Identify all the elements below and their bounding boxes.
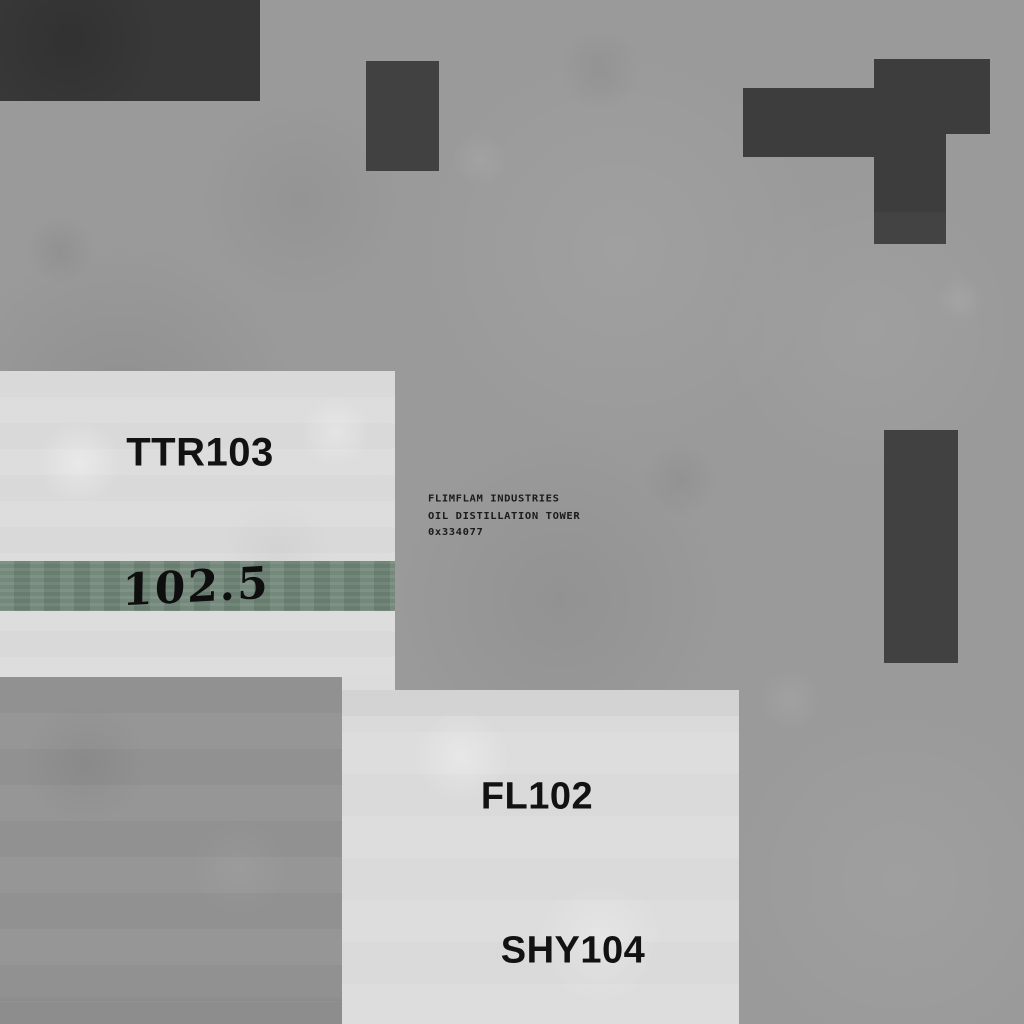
tank-label-ttr103: TTR103 [126,431,274,476]
facility-sign-line-code: 0x334077 [428,525,580,542]
facility-sign-line-unit: OIL DISTILLATION TOWER [428,508,580,525]
lower-left-slab [0,677,342,1024]
facility-ground-scene: TTR103 102.5 FL102 SHY104 FLIMFLAM INDUS… [0,0,1024,1024]
dark-structure-small-column [366,61,439,171]
tank-label-fl102: FL102 [481,776,593,819]
dark-structure-top-left [0,0,260,101]
facility-sign-line-company: FLIMFLAM INDUSTRIES [428,491,580,508]
tank-panel-fl102-shy104 [342,690,739,1024]
dark-structure-tee-stem [874,134,946,244]
tank-panel-connector [342,677,395,690]
tank-label-shy104: SHY104 [501,930,646,973]
gauge-value-handwritten: 102.5 [122,558,270,617]
dark-structure-right-column [884,430,958,663]
facility-sign: FLIMFLAM INDUSTRIES OIL DISTILLATION TOW… [428,491,580,541]
dark-structure-tee-head [874,59,990,134]
tank-panel-ttr103 [0,371,395,677]
dark-structure-tee-bar [743,88,875,157]
